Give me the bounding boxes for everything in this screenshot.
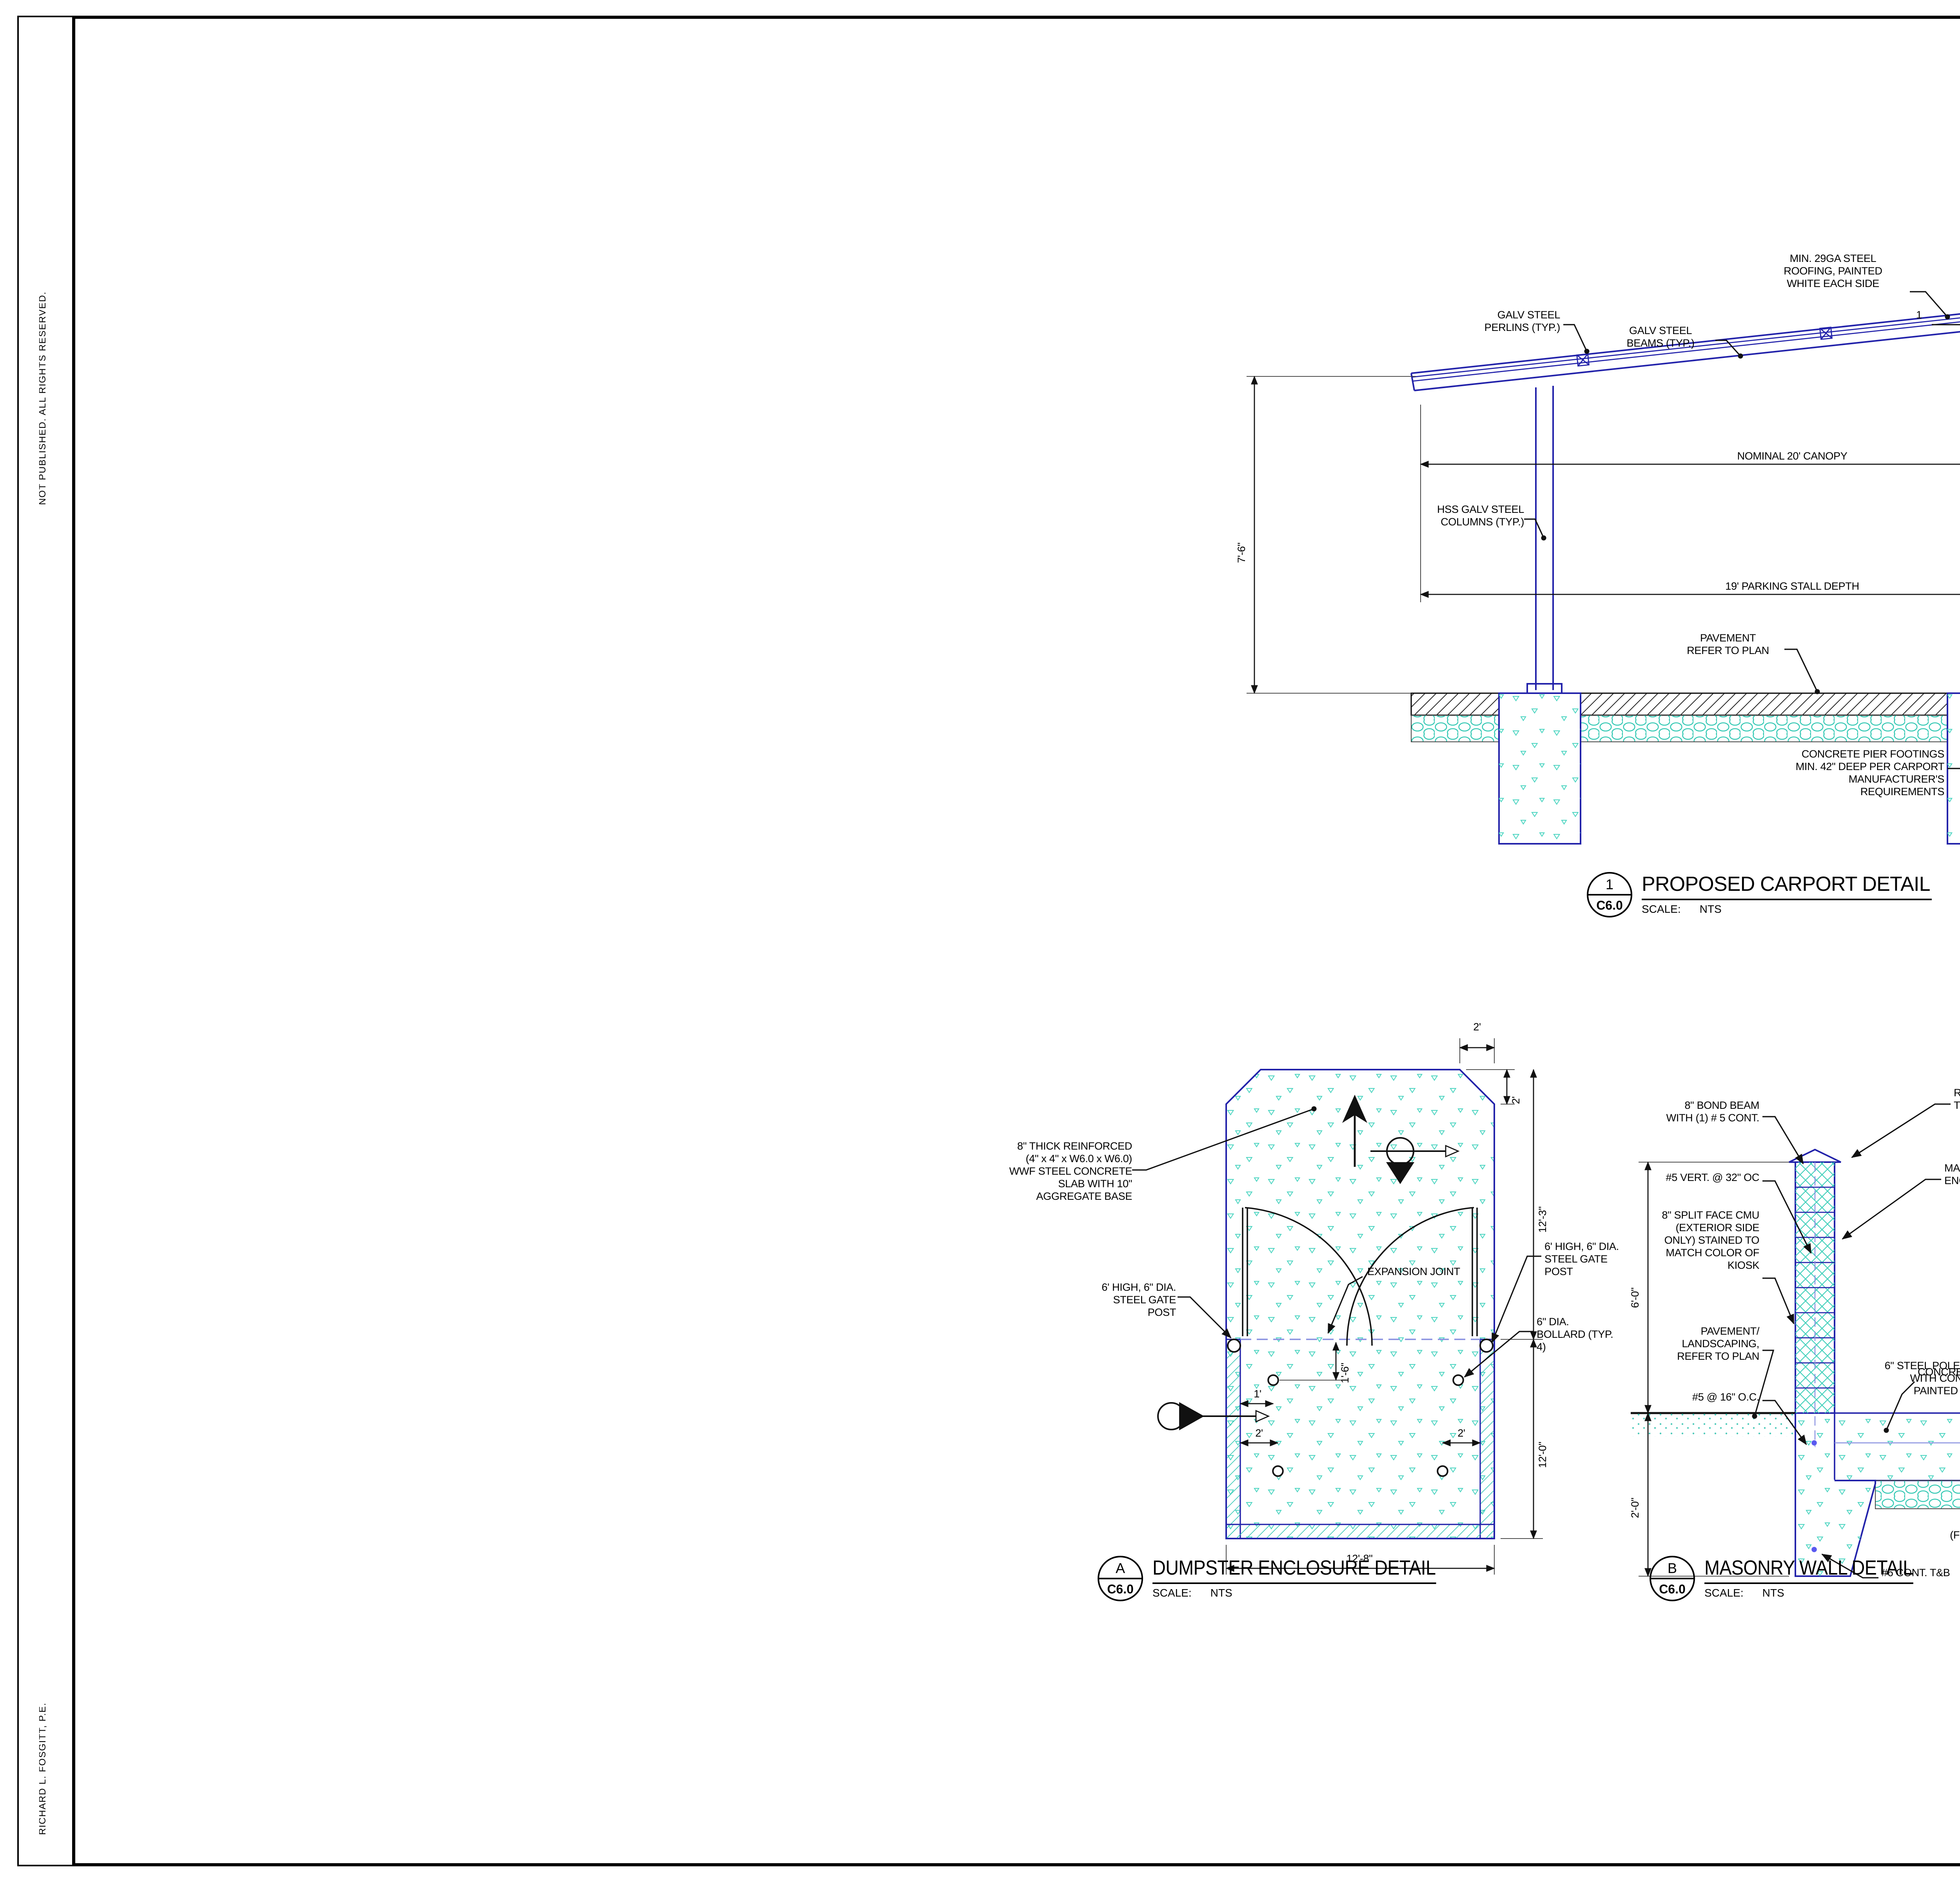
- scale-value: NTS: [1762, 1589, 1784, 1600]
- bubble-sheet: C6.0: [1099, 1579, 1142, 1600]
- bubble-number: 1: [1588, 874, 1631, 896]
- scale-label: SCALE:: [1704, 1589, 1744, 1600]
- scale-value: NTS: [1700, 905, 1722, 916]
- masonry-label-footing-bars: #5 @ 16" O.C.: [1650, 1393, 1759, 1405]
- carport-label-perlins: GALV STEEL PERLINS (TYP.): [1450, 311, 1560, 335]
- bubble-number: B: [1651, 1557, 1693, 1579]
- dumpster-drawing: [1132, 1038, 1543, 1575]
- dumpster-dim-bottom-right: 2': [1446, 1429, 1477, 1441]
- masonry-label-cmu: 8" SPLIT FACE CMU (EXTERIOR SIDE ONLY) S…: [1634, 1211, 1759, 1273]
- masonry-label-rounded-top: ROUNDED CONCRETE TOP PAINTED BROWN: [1954, 1088, 1960, 1113]
- dumpster-label-post-left: 6' HIGH, 6" DIA. STEEL GATE POST: [1066, 1283, 1176, 1320]
- carport-label-beams: GALV STEEL BEAMS (TYP.): [1609, 326, 1712, 351]
- carport-label-pier-footings: CONCRETE PIER FOOTINGS MIN. 42" DEEP PER…: [1769, 750, 1944, 799]
- masonry-dim-height: 6'-0": [1631, 1258, 1643, 1308]
- dumpster-dim-top-w: 2': [1461, 1023, 1493, 1035]
- masonry-label-bond-beam: 8" BOND BEAM WITH (1) # 5 CONT.: [1634, 1101, 1759, 1126]
- dumpster-label-slab: 8" THICK REINFORCED (4" x 4" x W6.0 x W6…: [1004, 1142, 1132, 1204]
- detail-title-dumpster: A C6.0 DUMPSTER ENCLOSURE DETAIL SCALE:N…: [1098, 1556, 1435, 1601]
- detail-title-masonry: B C6.0 MASONRY WALL DETAIL SCALE:NTS: [1650, 1556, 1900, 1601]
- detail-title-carport: 1 C6.0 PROPOSED CARPORT DETAIL SCALE:NTS: [1587, 872, 1932, 917]
- bubble-sheet: C6.0: [1588, 896, 1631, 916]
- masonry-dim-depth: 2'-0": [1631, 1468, 1643, 1518]
- bubble-sheet: C6.0: [1651, 1579, 1693, 1600]
- bubble-number: A: [1099, 1557, 1142, 1579]
- detail-title-text: MASONRY WALL DETAIL: [1704, 1556, 1913, 1584]
- dumpster-dim-gate-down: 1'-6": [1341, 1346, 1353, 1383]
- carport-dim-canopy: NOMINAL 20' CANOPY: [1659, 452, 1926, 464]
- detail-title-text: PROPOSED CARPORT DETAIL: [1642, 872, 1932, 900]
- dumpster-label-bollard: 6" DIA. BOLLARD (TYP. 4): [1537, 1317, 1640, 1355]
- detail-bubble-carport: 1 C6.0: [1587, 872, 1632, 917]
- gate-label-steel-pole: 6" STEEL POLE, FILLED WITH CONCRETE, PAI…: [1875, 1361, 1960, 1399]
- detail-bubble-dumpster: A C6.0: [1098, 1556, 1143, 1601]
- carport-label-columns: HSS GALV STEEL COLUMNS (TYP.): [1408, 505, 1524, 530]
- carport-slope-rise: 1: [1916, 311, 1922, 323]
- scale-value: NTS: [1210, 1589, 1232, 1600]
- carport-label-pavement: PAVEMENT REFER TO PLAN: [1671, 634, 1784, 658]
- dumpster-dim-right-lower: 12'-0": [1538, 1411, 1551, 1468]
- carport-dim-height: 7'-6": [1237, 510, 1250, 563]
- dumpster-dim-right-upper: 12'-3": [1538, 1176, 1551, 1233]
- masonry-label-wall: MASONRY ENCLOSURE WALL: [1944, 1164, 1960, 1188]
- masonry-label-vert-bars: #5 VERT. @ 32" OC: [1634, 1173, 1759, 1186]
- carport-dim-stall: 19' PARKING STALL DEPTH: [1635, 582, 1949, 594]
- dumpster-dim-gate-inset: 1': [1242, 1390, 1273, 1402]
- dumpster-dim-bottom-left: 2': [1243, 1429, 1275, 1441]
- gate-label-footing-beyond: (FOOTING BEYOND): [1929, 1531, 1960, 1543]
- carport-label-roofing: MIN. 29GA STEEL ROOFING, PAINTED WHITE E…: [1756, 254, 1910, 291]
- dumpster-dim-top-h: 2': [1512, 1073, 1524, 1104]
- scale-label: SCALE:: [1642, 905, 1681, 916]
- scale-label: SCALE:: [1152, 1589, 1192, 1600]
- detail-title-text: DUMPSTER ENCLOSURE DETAIL: [1152, 1556, 1436, 1584]
- masonry-label-pavement: PAVEMENT/ LANDSCAPING, REFER TO PLAN: [1634, 1327, 1759, 1364]
- plan-sheet: NOT PUBLISHED. ALL RIGHTS RESERVED. RICH…: [0, 0, 1960, 1882]
- dumpster-label-expansion: EXPANSION JOINT: [1367, 1267, 1493, 1280]
- detail-bubble-masonry: B C6.0: [1650, 1556, 1695, 1601]
